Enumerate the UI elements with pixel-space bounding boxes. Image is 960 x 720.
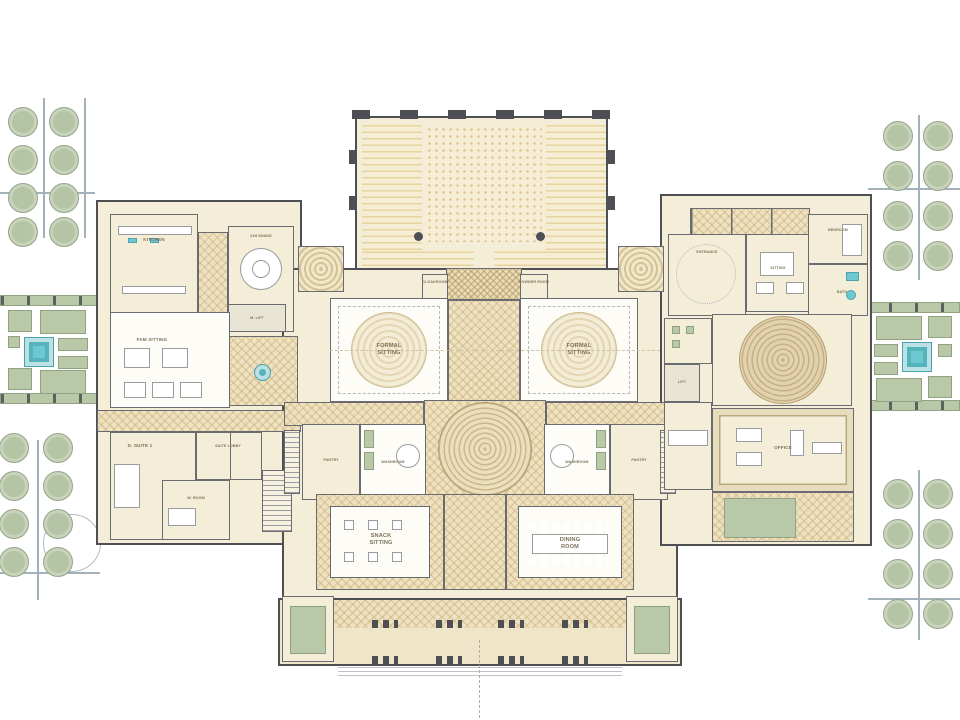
- kitchen-sink: [128, 238, 137, 243]
- label-bath: BATH: [837, 290, 847, 294]
- table: [124, 382, 146, 398]
- round-carpet: [739, 316, 827, 404]
- wall-pier: [608, 150, 615, 164]
- south-corridor: [444, 494, 506, 590]
- planting-bed: [876, 316, 922, 340]
- tree-icon: [49, 183, 79, 213]
- label-d-suite-1: D. SUITE 1: [128, 443, 153, 449]
- courtyard-lawn: [362, 250, 474, 266]
- label-pantry-right: PANTRY: [631, 458, 646, 462]
- table: [368, 520, 378, 530]
- pergola-line: [43, 98, 45, 238]
- tree-icon: [883, 241, 913, 271]
- label-formal-sitting-right: FORMAL SITTING: [567, 343, 592, 357]
- kitchen-counter: [118, 226, 192, 235]
- rotunda-dome-pattern: [438, 402, 532, 496]
- column-group: [372, 620, 398, 628]
- table: [368, 552, 378, 562]
- tree-icon: [43, 433, 73, 463]
- tree-icon: [43, 471, 73, 501]
- fountain: [902, 342, 932, 372]
- planting-bed: [40, 370, 86, 394]
- desk: [790, 430, 804, 456]
- label-bedroom: BEDROOM: [828, 228, 848, 232]
- tree-icon: [923, 161, 953, 191]
- sofa: [736, 428, 762, 442]
- tree-icon: [0, 547, 29, 577]
- tree-icon: [49, 217, 79, 247]
- courtyard-planter: [414, 232, 423, 241]
- hedge-strip: [862, 302, 960, 313]
- center-axis: [479, 640, 480, 718]
- terrace-steps: [338, 666, 622, 676]
- room-small: [230, 432, 262, 480]
- table: [152, 382, 174, 398]
- hedge-strip: [0, 295, 98, 306]
- courtyard-lawn: [494, 250, 606, 266]
- wc-stall: [364, 430, 374, 448]
- label-snack-sitting: SNACK SITTING: [369, 533, 392, 547]
- cross-corridor: [546, 402, 676, 426]
- label-sitting: SITTING: [770, 266, 785, 270]
- planting-bed: [928, 376, 952, 398]
- wall-pier: [349, 196, 356, 210]
- table: [180, 382, 202, 398]
- bed: [668, 430, 708, 446]
- wc-stall: [672, 340, 680, 348]
- pergola-line: [868, 598, 960, 600]
- sofa: [736, 452, 762, 466]
- planting-bed: [938, 344, 952, 357]
- wc-stall: [672, 326, 680, 334]
- label-pantry-left: PANTRY: [323, 458, 338, 462]
- planting-bed: [8, 368, 32, 390]
- tree-icon: [43, 509, 73, 539]
- fountain: [24, 337, 54, 367]
- planting-bed: [874, 362, 898, 375]
- floor-plan-canvas: KITCHEN 24H DINING M. LIFT FAM SITTING D…: [0, 0, 960, 720]
- dining-chairs: [530, 556, 610, 564]
- rosette-ornament: [618, 246, 664, 292]
- label-m-lift: M. LIFT: [250, 316, 264, 320]
- tree-icon: [923, 519, 953, 549]
- column-group: [562, 620, 588, 628]
- central-hall: [448, 300, 520, 402]
- tree-icon: [0, 471, 29, 501]
- label-cloakroom: CLOAKROOM: [422, 280, 447, 284]
- label-entrance: ENTRANCE: [696, 250, 717, 254]
- label-formal-sitting-left: FORMAL SITTING: [377, 343, 402, 357]
- tree-icon: [0, 433, 29, 463]
- tree-icon: [43, 547, 73, 577]
- bed: [168, 508, 196, 526]
- tree-icon: [8, 217, 38, 247]
- pergola-line: [37, 440, 39, 600]
- round-dining-table-inner: [252, 260, 270, 278]
- tree-icon: [923, 559, 953, 589]
- pergola-line: [918, 470, 920, 640]
- wing-corridor: [97, 410, 301, 432]
- table: [392, 552, 402, 562]
- room-side-bed: [664, 402, 712, 490]
- label-lift: LIFT: [678, 380, 686, 384]
- pavilion-floor: [290, 606, 326, 654]
- green-court: [724, 498, 796, 538]
- planting-bed: [8, 310, 32, 332]
- label-kitchen: KITCHEN: [143, 237, 164, 243]
- tree-icon: [49, 145, 79, 175]
- tree-icon: [923, 121, 953, 151]
- tree-icon: [49, 107, 79, 137]
- wc-stall: [596, 430, 606, 448]
- tree-icon: [8, 145, 38, 175]
- tree-icon: [883, 121, 913, 151]
- label-washroom-left: WASHROOM: [381, 460, 404, 464]
- court-fountain: [254, 364, 271, 381]
- column-group: [498, 656, 524, 664]
- column-group: [372, 656, 398, 664]
- planting-bed: [928, 316, 952, 338]
- label-fam-sitting: FAM SITTING: [137, 337, 168, 343]
- column-group: [436, 620, 462, 628]
- dining-chairs: [530, 524, 610, 532]
- planting-bed: [8, 336, 20, 348]
- tree-icon: [883, 479, 913, 509]
- tree-icon: [883, 559, 913, 589]
- label-w-room: W. ROOM: [187, 496, 204, 500]
- tree-icon: [8, 183, 38, 213]
- vanity-table: [550, 444, 574, 468]
- table: [344, 520, 354, 530]
- tree-icon: [0, 509, 29, 539]
- tree-icon: [923, 241, 953, 271]
- wc-stall: [596, 452, 606, 470]
- sofa: [756, 282, 774, 294]
- kitchen-island: [122, 286, 186, 294]
- rosette-ornament: [298, 246, 344, 292]
- desk: [812, 442, 842, 454]
- pavilion-floor: [634, 606, 670, 654]
- tree-icon: [883, 599, 913, 629]
- bath-tub: [846, 272, 859, 281]
- planting-bed: [58, 338, 88, 351]
- table: [392, 520, 402, 530]
- wall-piers: [352, 110, 611, 119]
- hedge-strip: [0, 393, 98, 404]
- label-suite-lobby: SUITE LOBBY: [215, 444, 241, 448]
- tree-icon: [923, 599, 953, 629]
- table: [162, 348, 188, 368]
- vestibule: [446, 268, 522, 300]
- bed: [114, 464, 140, 508]
- basin: [846, 290, 856, 300]
- staircase: [284, 430, 300, 494]
- courtyard-planter: [536, 232, 545, 241]
- planting-bed: [58, 356, 88, 369]
- planting-bed: [874, 344, 898, 357]
- wall-pier: [349, 150, 356, 164]
- label-office: OFFICE: [774, 445, 792, 451]
- terrace-gallery: [282, 600, 678, 628]
- tree-icon: [883, 161, 913, 191]
- tree-icon: [8, 107, 38, 137]
- tree-icon: [923, 479, 953, 509]
- tree-icon: [923, 201, 953, 231]
- label-dining-room: DINING ROOM: [560, 537, 580, 551]
- table: [344, 552, 354, 562]
- column-group: [562, 656, 588, 664]
- pergola-line: [84, 98, 86, 238]
- label-powder: POWDER ROOM: [519, 280, 549, 284]
- sofa: [760, 252, 794, 276]
- tree-icon: [883, 519, 913, 549]
- wc-stall: [364, 452, 374, 470]
- label-24h-dining: 24H DINING: [250, 234, 272, 238]
- column-group: [498, 620, 524, 628]
- vanity-table: [396, 444, 420, 468]
- planting-bed: [40, 310, 86, 334]
- wall-pier: [608, 196, 615, 210]
- courtyard-lawn: [362, 124, 422, 250]
- label-washroom-right: WASHROOM: [565, 460, 588, 464]
- sofa: [786, 282, 804, 294]
- planting-bed: [876, 378, 922, 402]
- tree-icon: [883, 201, 913, 231]
- column-group: [436, 656, 462, 664]
- wc-stall: [686, 326, 694, 334]
- cross-corridor: [284, 402, 424, 426]
- courtyard-parterre: [426, 126, 542, 242]
- courtyard-lawn: [546, 124, 606, 250]
- pergola-line: [918, 115, 920, 280]
- table: [124, 348, 150, 368]
